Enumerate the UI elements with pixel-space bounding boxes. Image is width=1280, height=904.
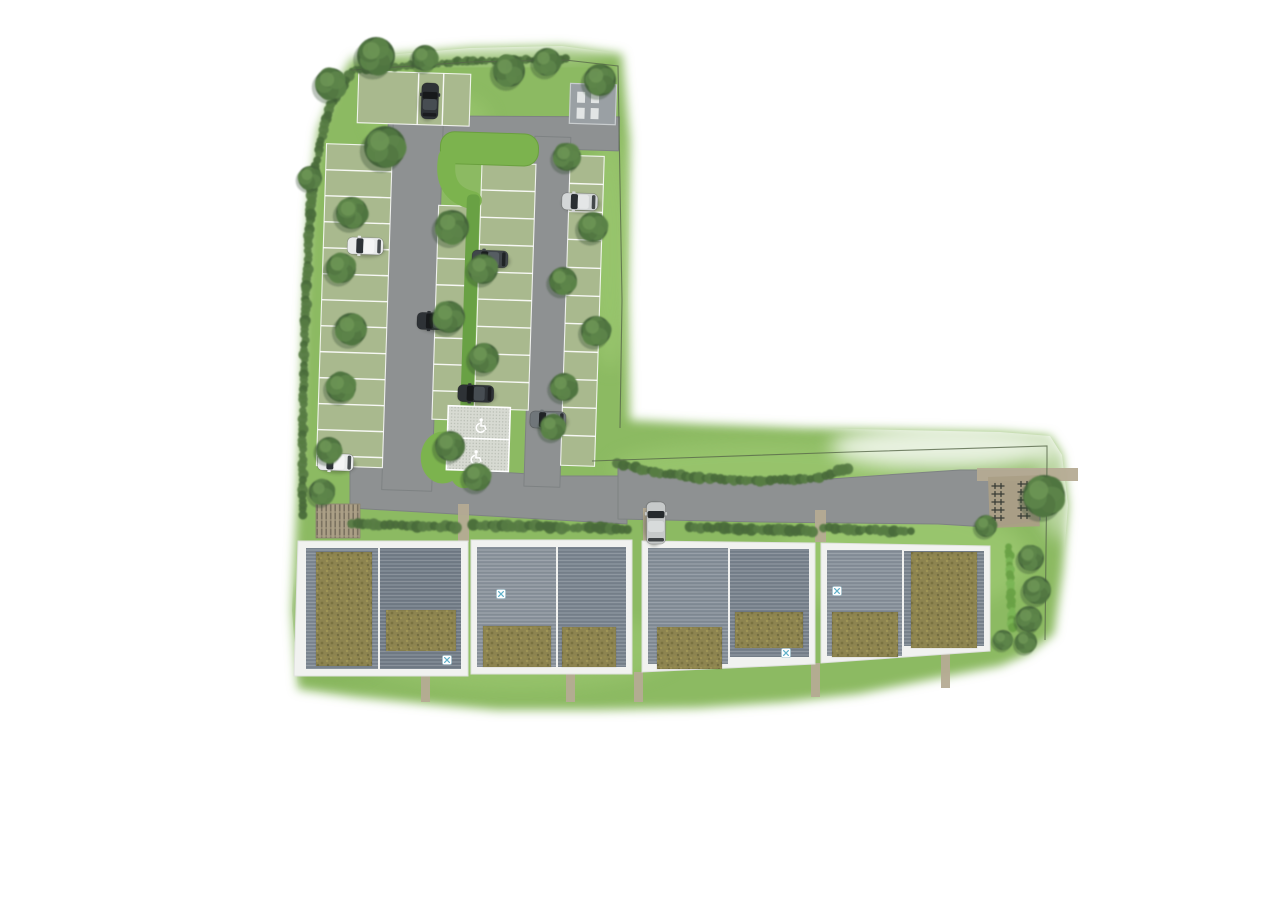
- hedge-bush: [300, 400, 308, 408]
- car-mirror: [572, 210, 576, 212]
- van: [644, 502, 668, 547]
- tree-highlight: [440, 215, 455, 230]
- car-rear-window: [502, 252, 506, 266]
- sedum-roof-patch: [386, 610, 456, 651]
- car-mirror: [540, 409, 544, 411]
- tree-highlight: [586, 320, 600, 334]
- tree-highlight: [320, 441, 332, 453]
- tree-highlight: [996, 633, 1005, 642]
- hedge-bush: [449, 522, 461, 534]
- footpath: [811, 663, 820, 697]
- sedum-roof-patch: [911, 552, 977, 648]
- car-rear-window: [377, 239, 381, 253]
- hedge-bush: [299, 445, 307, 453]
- car-roof: [474, 386, 485, 400]
- car-mirror: [427, 311, 431, 313]
- tree-highlight: [537, 52, 550, 65]
- tree-highlight: [331, 376, 345, 390]
- car-mirror: [357, 254, 361, 256]
- building-block-D: [821, 543, 990, 663]
- site-plan-svg: [0, 0, 1280, 904]
- car-mirror: [482, 249, 486, 251]
- car-mirror: [427, 329, 431, 331]
- hedge-bush: [623, 525, 632, 534]
- tree-highlight: [498, 59, 512, 73]
- parking-bays: [316, 144, 392, 468]
- car-mirror: [420, 93, 422, 97]
- car-mirror: [468, 383, 472, 385]
- car-rear-window: [488, 387, 492, 401]
- building-block-A: [294, 541, 468, 676]
- car-roof: [423, 99, 437, 110]
- car-mirror: [645, 512, 647, 516]
- hedge-bush: [298, 511, 307, 520]
- hedge-bush: [563, 524, 571, 532]
- tree-highlight: [553, 271, 566, 284]
- building-block-C: [642, 541, 815, 672]
- tree-highlight: [474, 347, 488, 361]
- rooflight-icon: [782, 649, 791, 658]
- rooflight-icon: [833, 587, 842, 596]
- footpath: [634, 672, 643, 702]
- sedum-roof-patch: [832, 612, 898, 657]
- car-roof: [363, 239, 374, 253]
- car-mirror: [467, 402, 471, 404]
- car-windshield: [467, 386, 474, 401]
- sedum-roof-patch: [735, 612, 803, 648]
- tree-highlight: [1018, 634, 1028, 644]
- rooflight-icon: [497, 590, 506, 599]
- tree-highlight: [440, 435, 454, 449]
- car-rear-window: [422, 113, 436, 117]
- bay-surface: [316, 144, 392, 468]
- car-mirror: [438, 93, 440, 97]
- tree-highlight: [1027, 580, 1040, 593]
- tree-highlight: [978, 518, 988, 528]
- tree-highlight: [370, 132, 389, 151]
- car-mirror: [572, 191, 576, 193]
- tree-highlight: [320, 72, 334, 86]
- tree-highlight: [416, 49, 428, 61]
- site-plan: [0, 0, 1280, 904]
- car-rear-window: [648, 538, 664, 542]
- tree-highlight: [1020, 610, 1032, 622]
- car-windshield: [648, 511, 665, 518]
- building-block-B: [471, 540, 632, 674]
- tree-highlight: [544, 418, 556, 430]
- car-mirror: [327, 470, 331, 472]
- sedum-roof-patch: [657, 627, 722, 669]
- hedge-bush: [561, 54, 570, 63]
- hedge-bush: [842, 463, 853, 474]
- tree-highlight: [363, 42, 380, 59]
- tree-highlight: [1029, 481, 1048, 500]
- footpath: [941, 652, 950, 688]
- car-windshield: [422, 92, 437, 99]
- car-windshield: [571, 194, 578, 209]
- tree-highlight: [1022, 549, 1034, 561]
- tree-highlight: [589, 68, 603, 82]
- tree-highlight: [473, 258, 487, 272]
- tree-highlight: [341, 201, 355, 215]
- sedum-roof-patch: [562, 627, 616, 667]
- footpath: [566, 672, 575, 702]
- tree-highlight: [467, 467, 480, 480]
- tree-highlight: [331, 257, 345, 271]
- bin-store-door: [576, 108, 584, 119]
- footpath: [421, 674, 430, 702]
- hedge-bush: [807, 526, 818, 537]
- car-roof: [578, 195, 589, 209]
- tree-highlight: [438, 305, 452, 319]
- bin-store-door: [590, 108, 598, 119]
- tree-highlight: [313, 483, 325, 495]
- building-terrace: [294, 540, 990, 676]
- car-mirror: [665, 512, 667, 516]
- tree-highlight: [302, 169, 313, 180]
- sedum-roof-patch: [316, 552, 372, 666]
- car-rear-window: [592, 195, 596, 209]
- car-windshield: [356, 238, 363, 253]
- car-mirror: [358, 236, 362, 238]
- car-rear-window: [347, 456, 351, 470]
- grass-streak: [370, 31, 610, 59]
- tree-highlight: [554, 377, 567, 390]
- footpath: [458, 504, 469, 542]
- sedum-roof-patch: [483, 626, 551, 667]
- rooflight-icon: [443, 656, 452, 665]
- tree-highlight: [557, 147, 570, 160]
- hedge-bush: [907, 527, 915, 535]
- tree-highlight: [583, 216, 597, 230]
- car-roof: [648, 521, 664, 532]
- tree-highlight: [340, 317, 354, 331]
